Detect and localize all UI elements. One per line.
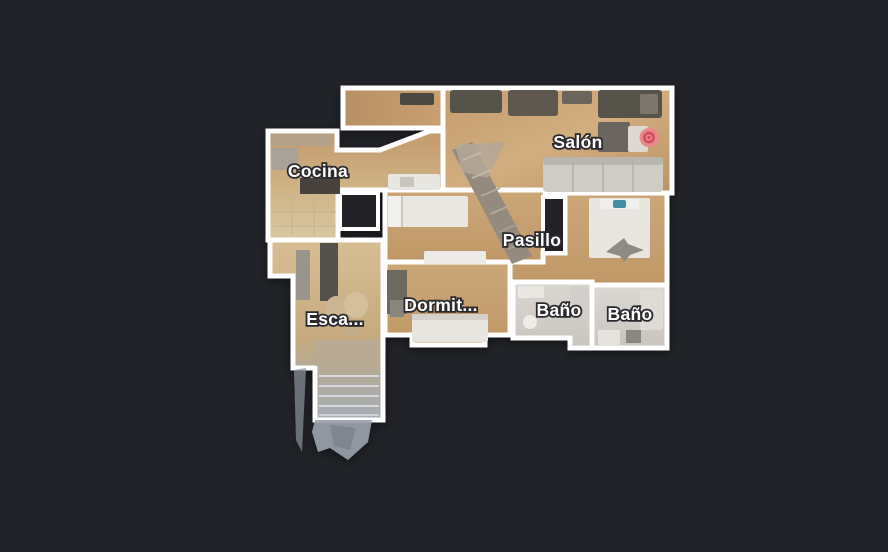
room-label-bano-1: Baño bbox=[537, 300, 582, 320]
room-label-pasillo: Pasillo bbox=[503, 230, 562, 250]
single-bed-bottom bbox=[412, 314, 488, 342]
room-label-cocina: Cocina bbox=[288, 161, 348, 181]
double-bed-top bbox=[388, 196, 468, 227]
void-notch-left bbox=[340, 193, 378, 229]
salon-shelf bbox=[508, 90, 558, 116]
room-label-salon: Salón bbox=[553, 132, 602, 152]
dormitorio-clutter-2 bbox=[390, 300, 404, 317]
scan-artifact-spill-left bbox=[294, 368, 306, 452]
room-label-bano-2: Baño bbox=[608, 304, 653, 324]
marker-center-dot bbox=[647, 136, 650, 139]
sofa bbox=[543, 157, 663, 192]
double-bed-right bbox=[589, 198, 650, 262]
floorplan-canvas[interactable]: Cocina Salón Pasillo Dormit... Baño Baño… bbox=[0, 0, 888, 552]
tv-unit bbox=[598, 122, 630, 152]
salon-wardrobe-detail bbox=[640, 94, 658, 114]
gallery-bench bbox=[400, 93, 434, 105]
floorplan-stage: Cocina Salón Pasillo Dormit... Baño Baño… bbox=[0, 0, 888, 552]
room-label-dormitorio: Dormit... bbox=[404, 295, 478, 315]
room-label-escalera: Esca... bbox=[306, 309, 364, 329]
salon-cabinet bbox=[450, 90, 502, 113]
desk bbox=[424, 251, 486, 264]
current-position-marker bbox=[640, 128, 659, 147]
salon-sideboard bbox=[562, 91, 592, 104]
